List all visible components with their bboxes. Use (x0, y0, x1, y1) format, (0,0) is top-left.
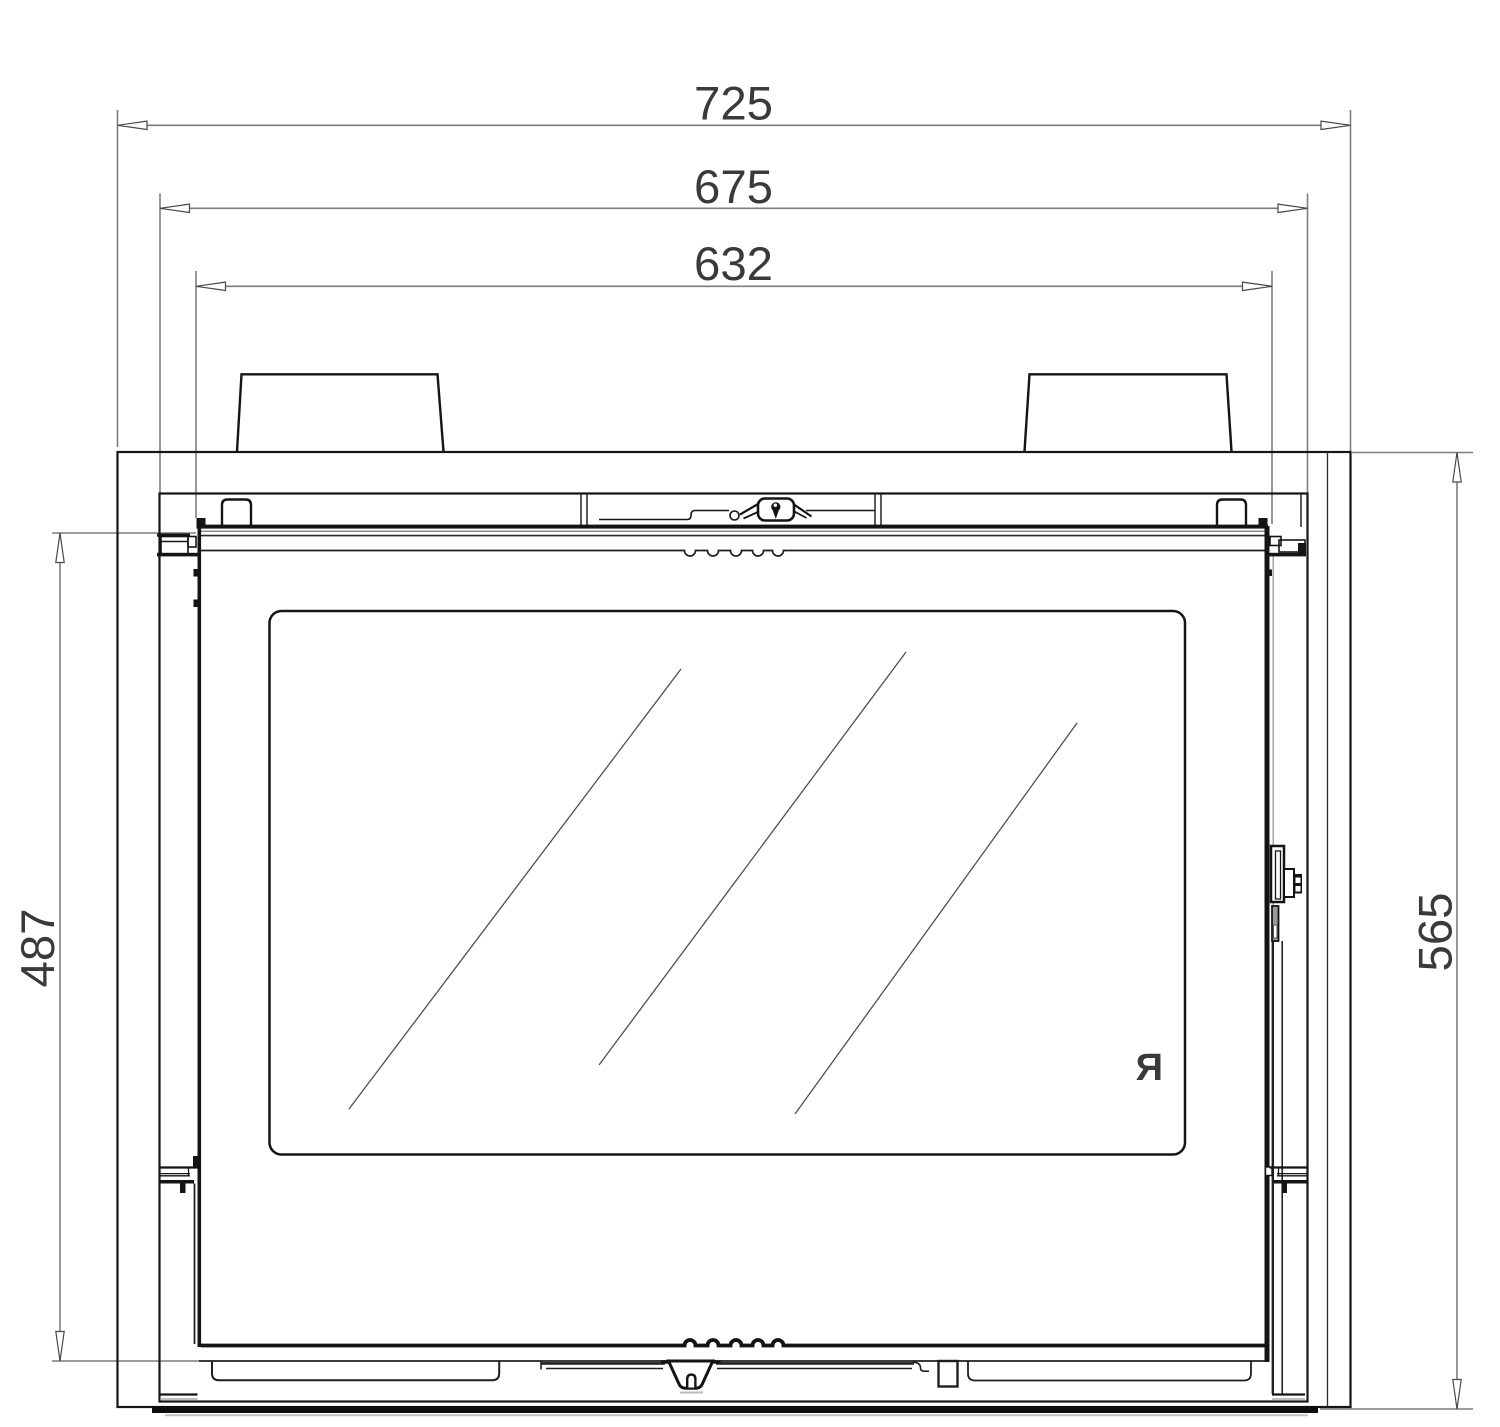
svg-text:632: 632 (694, 237, 773, 290)
svg-text:565: 565 (1409, 893, 1462, 972)
svg-text:675: 675 (694, 160, 773, 213)
svg-text:R: R (1136, 1047, 1163, 1089)
svg-text:725: 725 (694, 77, 773, 130)
svg-text:487: 487 (11, 909, 64, 988)
